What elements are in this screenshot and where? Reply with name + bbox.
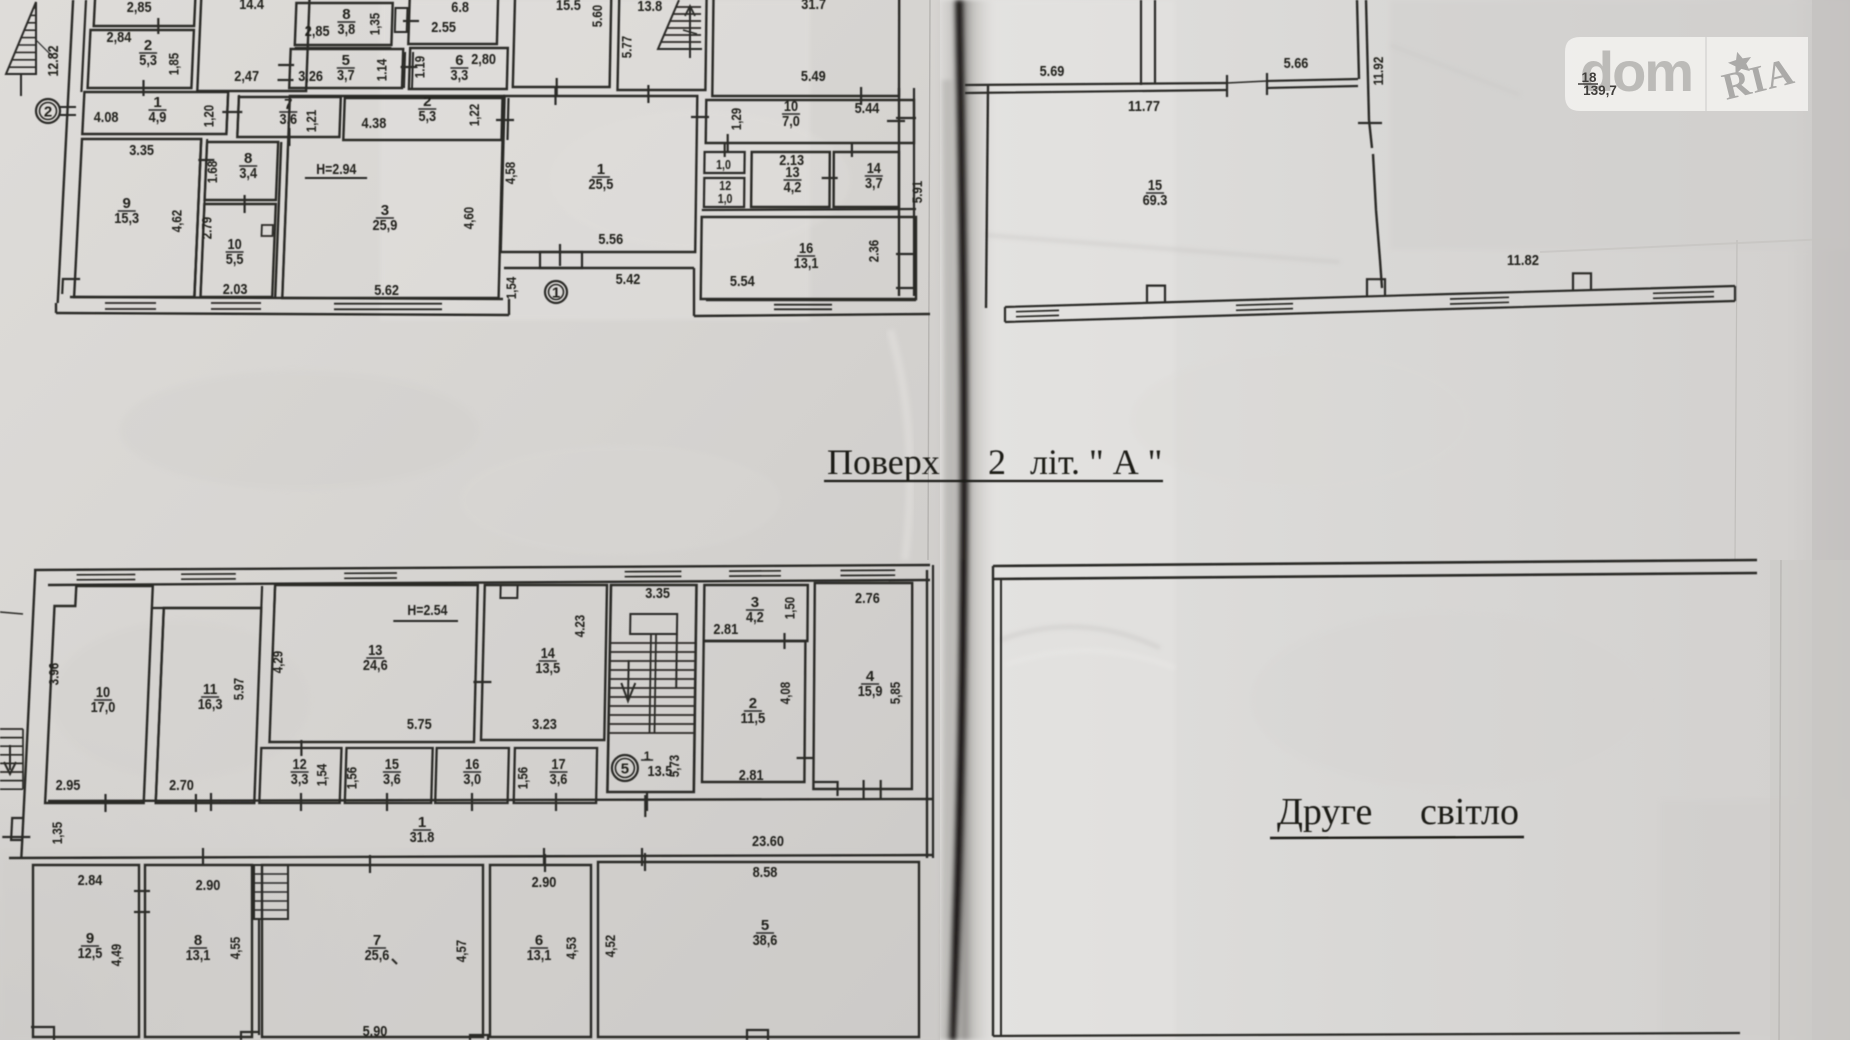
svg-text:13,1: 13,1 [186, 947, 211, 964]
svg-text:2,80: 2,80 [471, 51, 496, 68]
svg-text:4,2: 4,2 [746, 609, 764, 626]
svg-text:4.38: 4.38 [362, 115, 387, 132]
svg-text:4,53: 4,53 [564, 936, 579, 959]
svg-text:3,7: 3,7 [337, 67, 355, 84]
svg-text:Друге: Друге [1277, 791, 1372, 833]
svg-text:15.5: 15.5 [556, 0, 581, 14]
svg-text:5.60: 5.60 [590, 5, 605, 27]
svg-text:2.03: 2.03 [223, 281, 248, 298]
svg-text:3.96: 3.96 [46, 662, 61, 685]
svg-text:3,7: 3,7 [865, 175, 883, 192]
svg-text:1: 1 [552, 285, 560, 302]
svg-text:139,7: 139,7 [1583, 83, 1617, 98]
svg-text:3,3: 3,3 [451, 67, 469, 84]
svg-text:25,9: 25,9 [373, 217, 398, 234]
svg-text:2: 2 [44, 104, 52, 121]
svg-text:2,84: 2,84 [107, 29, 132, 46]
svg-text:H=2.94: H=2.94 [316, 161, 357, 178]
svg-text:2.36: 2.36 [867, 239, 882, 262]
svg-text:2.84: 2.84 [78, 872, 103, 889]
svg-text:1,35: 1,35 [50, 821, 65, 844]
svg-text:4,57: 4,57 [454, 940, 469, 962]
svg-text:2.76: 2.76 [855, 590, 880, 607]
svg-text:2,47: 2,47 [234, 68, 259, 85]
svg-text:2.81: 2.81 [713, 621, 738, 638]
svg-text:4.08: 4.08 [94, 109, 119, 126]
svg-text:5,3: 5,3 [418, 108, 436, 125]
svg-text:2.55: 2.55 [431, 19, 456, 36]
svg-text:14.4: 14.4 [239, 0, 264, 13]
svg-text:3,4: 3,4 [239, 165, 257, 182]
svg-text:1,35: 1,35 [367, 12, 382, 35]
svg-text:5.54: 5.54 [730, 273, 755, 290]
svg-text:літ. " А ": літ. " А " [1030, 442, 1162, 482]
svg-text:5.66: 5.66 [1284, 55, 1309, 72]
svg-text:23.60: 23.60 [752, 833, 784, 850]
svg-text:5.44: 5.44 [855, 100, 880, 117]
svg-text:13,1: 13,1 [527, 947, 552, 964]
svg-text:Поверх: Поверх [827, 442, 940, 482]
svg-text:5.49: 5.49 [801, 68, 826, 85]
svg-text:2.90: 2.90 [532, 874, 557, 891]
svg-text:3,3: 3,3 [291, 771, 309, 788]
svg-text:3.35: 3.35 [129, 142, 154, 159]
svg-text:5.56: 5.56 [598, 231, 623, 248]
svg-text:2.90: 2.90 [196, 877, 221, 894]
svg-text:5.77: 5.77 [619, 36, 634, 58]
svg-text:11.92: 11.92 [1371, 57, 1386, 86]
svg-text:1,0: 1,0 [716, 158, 731, 172]
svg-text:1,20: 1,20 [201, 105, 216, 127]
svg-text:31.7: 31.7 [801, 0, 826, 13]
svg-text:38,6: 38,6 [753, 932, 778, 949]
svg-text:H=2.54: H=2.54 [407, 602, 448, 619]
svg-text:25,5: 25,5 [589, 176, 614, 193]
svg-text:3,6: 3,6 [550, 771, 568, 788]
svg-text:12.82: 12.82 [46, 46, 62, 77]
svg-text:1,56: 1,56 [515, 766, 530, 789]
svg-text:13,5: 13,5 [535, 660, 560, 677]
svg-text:5,73: 5,73 [667, 754, 682, 777]
svg-text:5,85: 5,85 [888, 681, 903, 704]
svg-text:1,50: 1,50 [783, 597, 798, 619]
svg-text:4,49: 4,49 [109, 944, 124, 966]
svg-text:4,62: 4,62 [170, 210, 185, 232]
svg-text:5.75: 5.75 [407, 716, 432, 733]
svg-text:17,0: 17,0 [91, 699, 116, 716]
svg-text:1,22: 1,22 [467, 104, 482, 126]
svg-text:4,60: 4,60 [462, 207, 477, 229]
svg-text:2.70: 2.70 [169, 777, 194, 794]
svg-text:15,9: 15,9 [858, 683, 883, 700]
svg-text:4,55: 4,55 [228, 936, 243, 959]
svg-text:16,3: 16,3 [198, 696, 223, 713]
svg-text:8.58: 8.58 [753, 864, 778, 881]
svg-text:1: 1 [644, 749, 651, 763]
svg-text:13.8: 13.8 [637, 0, 662, 15]
svg-text:5: 5 [621, 761, 629, 778]
svg-text:4,52: 4,52 [603, 935, 618, 957]
svg-text:12,5: 12,5 [78, 945, 103, 962]
svg-text:5.42: 5.42 [616, 271, 641, 288]
svg-text:4,08: 4,08 [778, 681, 793, 704]
svg-text:1,56: 1,56 [345, 766, 360, 789]
svg-text:4.23: 4.23 [573, 614, 588, 637]
svg-text:5,3: 5,3 [139, 52, 157, 69]
svg-text:3.23: 3.23 [532, 716, 557, 733]
svg-text:1,54: 1,54 [315, 763, 330, 786]
svg-text:11,5: 11,5 [741, 710, 766, 727]
svg-text:13,1: 13,1 [794, 255, 819, 272]
svg-text:1.14: 1.14 [375, 58, 390, 81]
svg-text:4,9: 4,9 [149, 109, 167, 126]
svg-text:1,85: 1,85 [167, 52, 182, 75]
svg-text:11.82: 11.82 [1507, 252, 1539, 269]
svg-text:3,26: 3,26 [298, 68, 323, 85]
svg-text:31.8: 31.8 [410, 829, 435, 846]
svg-text:2,85: 2,85 [127, 0, 152, 16]
svg-text:3,6: 3,6 [383, 771, 401, 788]
svg-text:1,21: 1,21 [304, 109, 319, 132]
svg-text:1.68: 1.68 [205, 160, 220, 183]
svg-text:1,54: 1,54 [504, 276, 519, 299]
svg-text:5.91: 5.91 [910, 180, 925, 203]
svg-text:4,2: 4,2 [784, 179, 802, 196]
svg-text:1.19: 1.19 [413, 56, 428, 78]
svg-text:5.69: 5.69 [1040, 63, 1065, 80]
svg-text:24,6: 24,6 [363, 657, 388, 674]
svg-text:2.79: 2.79 [200, 217, 215, 239]
svg-text:5.90: 5.90 [363, 1023, 388, 1040]
svg-text:2.95: 2.95 [56, 777, 81, 794]
svg-text:2.81: 2.81 [739, 767, 764, 784]
svg-text:7,0: 7,0 [782, 113, 800, 130]
svg-text:5,5: 5,5 [226, 251, 244, 268]
svg-text:15,3: 15,3 [114, 210, 139, 227]
svg-text:6.8: 6.8 [451, 0, 469, 16]
svg-text:12: 12 [719, 179, 731, 193]
svg-text:4,29: 4,29 [271, 651, 286, 673]
svg-text:5.97: 5.97 [232, 678, 247, 700]
svg-text:світло: світло [1420, 791, 1519, 833]
svg-text:1,29: 1,29 [729, 108, 744, 130]
svg-text:3,8: 3,8 [338, 21, 356, 38]
svg-text:1,0: 1,0 [718, 192, 733, 206]
svg-text:2,85: 2,85 [305, 23, 330, 40]
svg-text:4,58: 4,58 [503, 161, 518, 184]
svg-text:5.62: 5.62 [374, 282, 399, 299]
svg-text:3.35: 3.35 [645, 585, 670, 602]
svg-text:3,0: 3,0 [463, 771, 481, 788]
svg-text:25,6: 25,6 [365, 947, 390, 964]
svg-text:11.77: 11.77 [1128, 98, 1160, 115]
svg-text:2: 2 [988, 442, 1006, 482]
svg-text:69.3: 69.3 [1143, 192, 1168, 209]
